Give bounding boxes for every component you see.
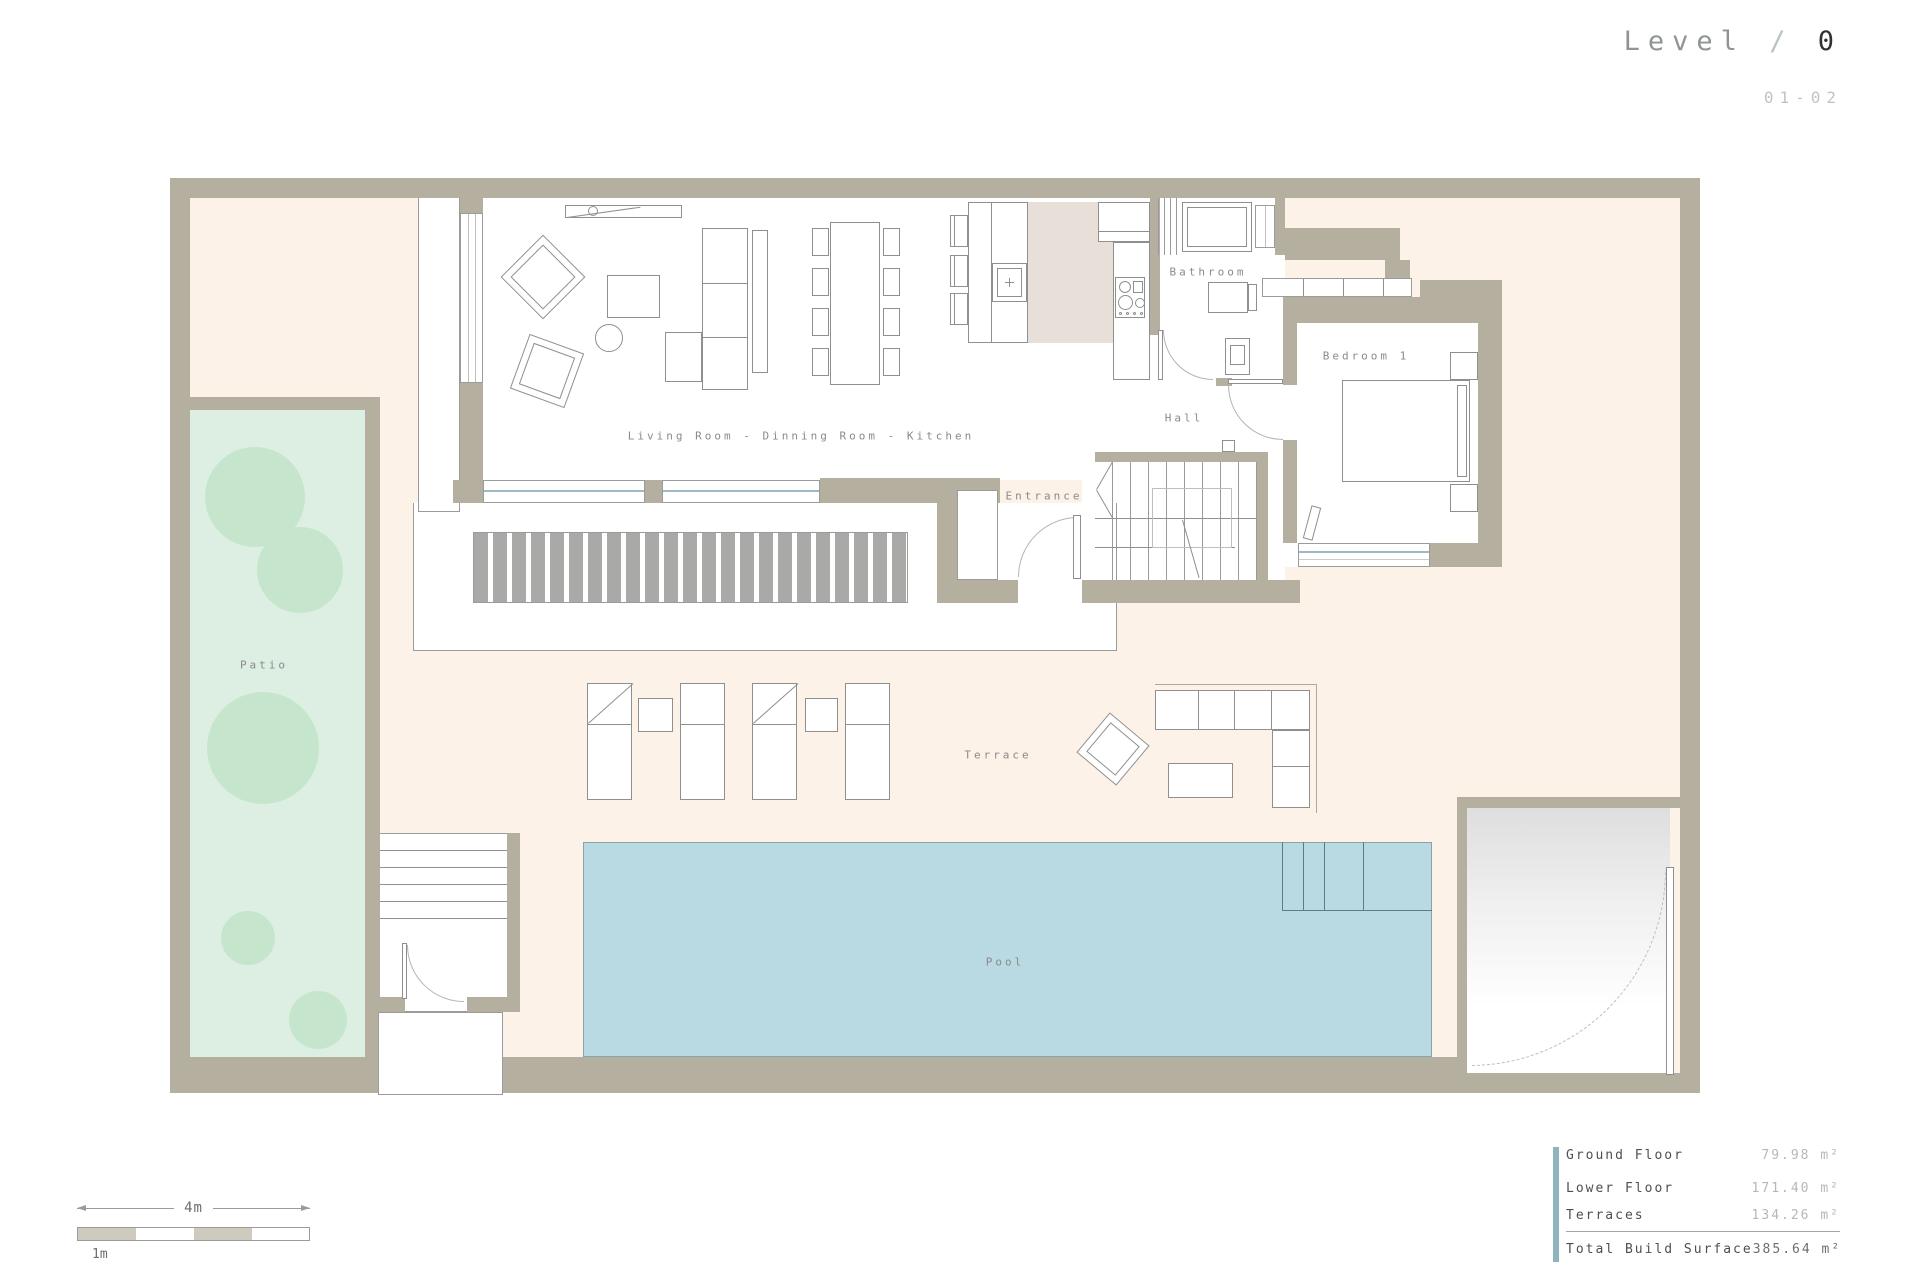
pool-steps: [1303, 842, 1304, 910]
toilet: [1225, 338, 1250, 375]
area-total-row: Total Build Surface 385.64 m²: [1566, 1242, 1840, 1257]
bedroom-door-swing-arc: [1228, 385, 1283, 440]
wall: [1457, 797, 1700, 808]
exterior-door: [402, 943, 407, 999]
entrance-door-swing-arc: [1018, 517, 1078, 577]
wall: [1283, 297, 1420, 323]
wall: [1257, 452, 1268, 580]
hall-label: Hall: [1165, 412, 1204, 425]
side-table: [607, 275, 660, 318]
window-south-1: [483, 480, 645, 503]
area-row-value: 171.40 m²: [1752, 1181, 1840, 1196]
area-table-divider: [1566, 1231, 1840, 1232]
outdoor-sofa: [1155, 690, 1310, 730]
sofa: [702, 228, 748, 390]
scale-total-label: 4m: [77, 1200, 310, 1216]
wall: [365, 397, 380, 1073]
terrace-label: Terrace: [964, 749, 1031, 762]
vanity-side: [1248, 284, 1257, 311]
bathroom-door-swing-arc: [1163, 330, 1213, 380]
wall: [467, 997, 520, 1012]
pool-label: Pool: [986, 956, 1025, 969]
patio-label: Patio: [240, 659, 288, 672]
stool: [950, 215, 968, 247]
window-bathroom: [1255, 205, 1275, 248]
wall: [1457, 797, 1467, 1073]
scale-segments: [77, 1227, 310, 1241]
dining-chair: [812, 268, 829, 296]
pool-steps-edge: [1282, 910, 1432, 911]
window-west: [460, 213, 483, 383]
pool-steps: [1363, 842, 1364, 910]
sofa-back: [752, 230, 768, 373]
wall: [957, 580, 1018, 603]
area-row-value: 79.98 m²: [1761, 1148, 1840, 1163]
wall: [1275, 198, 1285, 255]
dining-chair: [883, 268, 900, 296]
dining-chair: [883, 348, 900, 376]
stair-step-line: [378, 850, 507, 851]
vanity-sink: [1208, 282, 1248, 313]
pool: [583, 842, 1432, 1057]
stair-step-line: [378, 901, 507, 902]
wall: [460, 198, 483, 213]
entrance-door: [1073, 515, 1081, 579]
west-passage-strip: [418, 198, 460, 512]
garage-door-swing-arc: [1470, 870, 1666, 1066]
cooktop: [1115, 277, 1145, 318]
stair-wall-stub: [1222, 440, 1235, 452]
tv-bench: [565, 205, 682, 218]
bathroom-label: Bathroom: [1170, 266, 1247, 279]
window-bedroom: [1298, 543, 1430, 567]
stool: [950, 293, 968, 325]
bathroom-door: [1158, 330, 1163, 380]
title-separator: /: [1769, 26, 1793, 57]
outdoor-sofa: [1272, 730, 1310, 808]
wall: [1478, 297, 1502, 567]
stair-step-line: [378, 867, 507, 868]
fridge-oven-unit: [1098, 202, 1150, 242]
kitchen-sink: [992, 263, 1027, 302]
stair-vestibule: [378, 1012, 503, 1095]
tree: [207, 692, 319, 804]
bedroom-label: Bedroom 1: [1323, 350, 1410, 363]
page-title: Level / 0: [1624, 26, 1842, 57]
stair-step-line: [378, 884, 507, 885]
bathtub: [1182, 202, 1252, 252]
coffee-table: [1168, 763, 1233, 798]
nightstand: [1450, 484, 1478, 512]
wall: [378, 997, 405, 1012]
wall: [460, 383, 483, 480]
sheet-number: 01-02: [1764, 88, 1842, 107]
outdoor-sofa-back: [1155, 684, 1316, 685]
sofa-chaise: [665, 332, 702, 382]
dining-chair: [812, 228, 829, 256]
dining-chair: [812, 308, 829, 336]
sun-lounger: [587, 683, 632, 800]
floor-plan-page: Level / 0 01-02: [0, 0, 1920, 1280]
area-row-label: Terraces: [1566, 1208, 1645, 1223]
stair-step-line: [378, 918, 507, 919]
wall: [1095, 452, 1268, 462]
wall: [645, 480, 662, 503]
title-level-word: Level: [1624, 26, 1745, 57]
tree: [221, 911, 275, 965]
area-row-value: 134.26 m²: [1752, 1208, 1840, 1223]
wall: [1285, 228, 1400, 260]
wall: [1283, 440, 1297, 543]
area-table-accent-bar: [1553, 1147, 1559, 1262]
living-room-label: Living Room - Dinning Room - Kitchen: [628, 430, 974, 443]
area-total-value: 385.64 m²: [1753, 1242, 1841, 1257]
exterior-door-swing-arc: [407, 945, 464, 1002]
entrance-niche: [957, 490, 998, 580]
bedroom-closet: [1262, 278, 1412, 297]
wall: [1283, 323, 1297, 385]
title-level-number: 0: [1818, 26, 1842, 57]
tree: [289, 991, 347, 1049]
bed: [1342, 380, 1470, 482]
pool-steps: [1324, 842, 1325, 910]
sun-lounger: [752, 683, 797, 800]
area-row: Terraces 134.26 m²: [1566, 1208, 1840, 1223]
dining-table: [830, 222, 880, 385]
entrance-label: Entrance: [1006, 490, 1083, 503]
dining-chair: [883, 308, 900, 336]
wall: [453, 480, 483, 503]
wall: [1430, 543, 1502, 567]
wall: [190, 397, 380, 410]
tree: [257, 527, 343, 613]
deck-slats: [473, 532, 908, 603]
area-total-label: Total Build Surface: [1566, 1242, 1753, 1257]
sun-lounger: [680, 683, 725, 800]
stair-rail: [1152, 488, 1232, 548]
scale-unit-label: 1m: [92, 1247, 108, 1262]
shower-screen: [1158, 198, 1180, 255]
area-row: Lower Floor 171.40 m²: [1566, 1181, 1840, 1196]
round-table: [595, 324, 623, 352]
side-table: [805, 698, 838, 732]
outdoor-sofa-back: [1316, 684, 1317, 813]
wall: [937, 500, 957, 603]
area-row: Ground Floor 79.98 m²: [1566, 1148, 1840, 1163]
side-table: [638, 698, 673, 732]
bedroom-door: [1228, 379, 1283, 384]
window-south-2: [662, 480, 820, 503]
dining-chair: [883, 228, 900, 256]
wall: [507, 833, 520, 1012]
nightstand: [1450, 352, 1478, 380]
pool-steps: [1282, 842, 1283, 910]
wall: [1082, 580, 1300, 603]
area-row-label: Ground Floor: [1566, 1148, 1684, 1163]
stool: [950, 255, 968, 287]
sun-lounger: [845, 683, 890, 800]
garage-door: [1666, 867, 1674, 1075]
area-row-label: Lower Floor: [1566, 1181, 1674, 1196]
dining-chair: [812, 348, 829, 376]
